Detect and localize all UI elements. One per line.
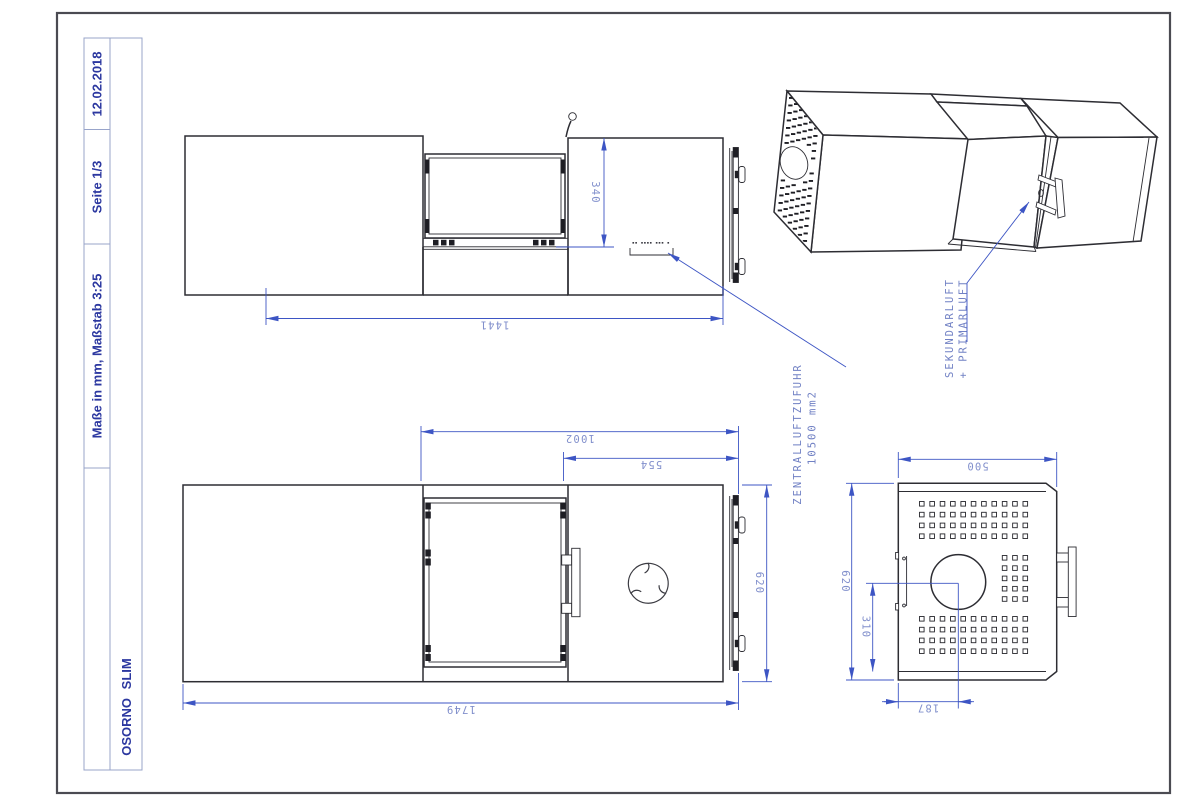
- dim-text-1002: 1002: [565, 432, 595, 444]
- dim-text-187: 187: [917, 702, 940, 714]
- title-scale-note: Maße in mm, Maßstab 3:25: [90, 274, 105, 439]
- view-end: 500 620 310 187: [839, 452, 1076, 714]
- view-front: 1002 554 620 1749: [183, 426, 772, 715]
- central-air-label-1: ZENTRALLUFTZUFUHR: [792, 363, 804, 504]
- dim-1002: 1002: [421, 426, 739, 494]
- view-top: ▪▪ ▪▪▪▪ ▪▪▪ ▪ 340 1441: [185, 113, 745, 331]
- central-air-label-2: 10500 mm2: [807, 390, 819, 465]
- title-page-number: Seite 1/3: [90, 161, 105, 214]
- combustion-air-label-2: + PRIMARLUFT: [958, 279, 970, 379]
- drawing-sheet: 12.02.2018 Seite 1/3 Maße in mm, Maßstab…: [0, 0, 1200, 800]
- title-block: 12.02.2018 Seite 1/3 Maße in mm, Maßstab…: [84, 38, 142, 770]
- view-isometric: [774, 91, 1157, 252]
- title-product-name: OSORNO SLIM: [119, 658, 134, 755]
- dim-500: 500: [898, 452, 1056, 487]
- door-handle-rod: [566, 113, 576, 137]
- dim-text-340: 340: [589, 181, 601, 204]
- door-edge-front: [730, 496, 745, 671]
- dim-text-1441: 1441: [479, 318, 509, 330]
- combustion-air-label-1: SEKUNDARLUFT: [944, 278, 956, 378]
- dim-text-310: 310: [860, 616, 872, 639]
- panel-handle: [1057, 547, 1076, 617]
- dim-text-620-front: 620: [753, 572, 765, 595]
- dim-554: 554: [564, 452, 739, 481]
- dim-text-554: 554: [640, 458, 663, 470]
- dim-text-1749: 1749: [446, 703, 476, 715]
- title-date: 12.02.2018: [90, 51, 105, 116]
- door-edge-top: [730, 148, 745, 283]
- dim-text-500: 500: [966, 460, 989, 472]
- dim-text-620-end: 620: [839, 570, 851, 593]
- micro-note: ▪▪ ▪▪▪▪ ▪▪▪ ▪: [632, 240, 670, 245]
- dim-620-end: 620: [839, 483, 894, 680]
- dim-620-front: 620: [742, 485, 772, 682]
